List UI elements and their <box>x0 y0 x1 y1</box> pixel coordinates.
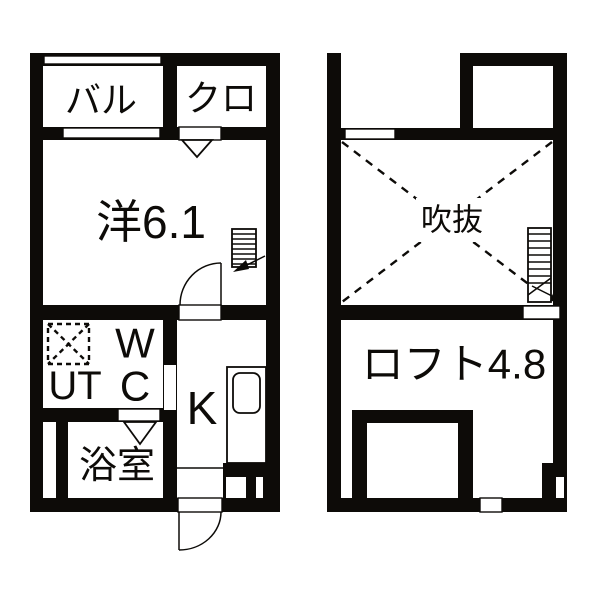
entrance-side-window <box>256 477 263 498</box>
closet-door-triangle-icon <box>182 140 212 157</box>
room-label-wc-w: W <box>115 320 155 367</box>
entrance-doorway <box>178 498 222 512</box>
second-floor-plan: 吹抜 ロフト4.8 <box>327 53 567 512</box>
pipe-space <box>43 422 56 498</box>
loft-side-slot <box>341 423 352 498</box>
void-wall-window <box>345 129 395 139</box>
wc-doorway <box>164 365 176 410</box>
stair-landing-opening <box>523 306 560 319</box>
loft-side-window <box>556 477 564 498</box>
floor-plan-drawing: バル クロ 洋6.1 W C UT K 浴室 <box>0 0 600 600</box>
room-label-wc-c: C <box>120 363 150 410</box>
room-label-balcony: バル <box>65 80 137 121</box>
bathroom-door-triangle-icon <box>124 422 156 444</box>
room-label-western-room: 洋6.1 <box>96 196 206 248</box>
entrance-door-swing-arc <box>179 512 221 550</box>
kitchen-counter <box>227 367 266 463</box>
western-room-doorway <box>179 305 221 320</box>
room-label-bathroom: 浴室 <box>79 445 155 487</box>
room-door-swing-arc <box>180 263 221 305</box>
room-label-closet: クロ <box>185 78 257 119</box>
washing-machine-pan-icon <box>48 324 89 364</box>
room-label-loft: ロフト4.8 <box>362 341 546 388</box>
room-label-void: 吹抜 <box>421 203 483 238</box>
balcony-room-window <box>63 128 160 138</box>
staircase-1f-icon <box>232 229 265 272</box>
first-floor-plan: バル クロ 洋6.1 W C UT K 浴室 <box>30 53 280 550</box>
bathroom-opening <box>118 409 160 421</box>
loft-bottom-window <box>480 498 502 512</box>
closet-opening <box>179 127 221 140</box>
room-label-ut: UT <box>48 364 101 408</box>
balcony-window <box>44 56 161 64</box>
entrance-porch <box>226 477 246 498</box>
room-label-kitchen: K <box>187 382 218 434</box>
kitchen-sink-icon <box>233 373 260 413</box>
floor-plan-canvas: バル クロ 洋6.1 W C UT K 浴室 <box>0 0 600 600</box>
